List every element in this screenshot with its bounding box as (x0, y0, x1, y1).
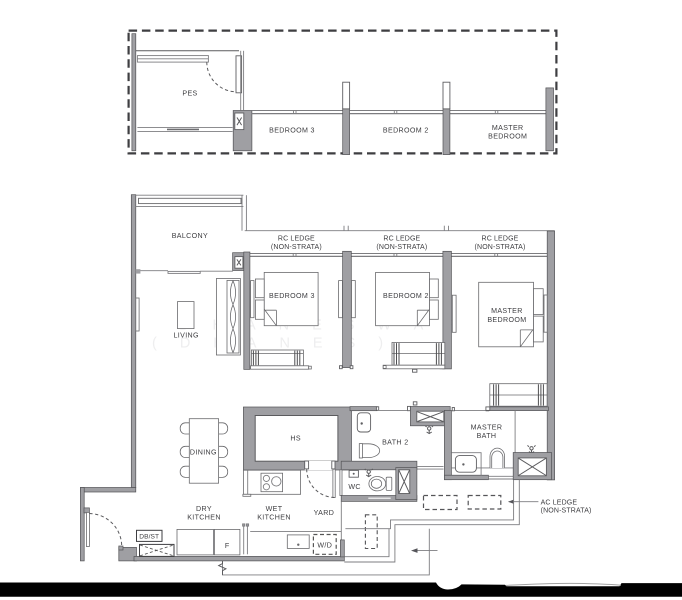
svg-text:BEDROOM 2: BEDROOM 2 (383, 126, 429, 134)
svg-text:RC LEDGE: RC LEDGE (482, 236, 519, 243)
svg-text:(NON-STRATA): (NON-STRATA) (475, 244, 526, 251)
svg-text:(NON-STRATA): (NON-STRATA) (271, 244, 322, 251)
svg-text:(NON-STRATA): (NON-STRATA) (376, 244, 427, 251)
svg-text:KITCHEN: KITCHEN (187, 514, 221, 522)
svg-text:AC LEDGE: AC LEDGE (541, 499, 578, 506)
svg-text:YARD: YARD (314, 509, 335, 517)
svg-text:PES: PES (182, 89, 197, 97)
svg-text:BEDROOM 2: BEDROOM 2 (383, 292, 429, 300)
svg-text:F: F (225, 542, 230, 550)
svg-text:WET: WET (266, 505, 283, 513)
svg-text:BATH 2: BATH 2 (382, 438, 408, 446)
svg-text:DB/ST: DB/ST (139, 534, 159, 541)
svg-text:BEDROOM: BEDROOM (488, 132, 527, 140)
svg-text:W/D: W/D (317, 541, 332, 549)
svg-text:(NON-STRATA): (NON-STRATA) (541, 508, 592, 515)
svg-text:WC: WC (348, 483, 361, 491)
svg-text:BEDROOM 3: BEDROOM 3 (269, 292, 315, 300)
svg-text:MASTER: MASTER (471, 423, 503, 431)
svg-text:BATH: BATH (477, 432, 497, 440)
svg-text:LIVING: LIVING (174, 332, 199, 340)
svg-text:MASTER: MASTER (492, 124, 524, 132)
svg-text:RC LEDGE: RC LEDGE (383, 236, 420, 243)
svg-text:BEDROOM 3: BEDROOM 3 (269, 126, 315, 134)
svg-text:BEDROOM: BEDROOM (487, 316, 526, 324)
svg-text:DRY: DRY (196, 505, 212, 513)
svg-text:MASTER: MASTER (491, 307, 523, 315)
svg-text:HS: HS (290, 434, 301, 442)
svg-text:RC LEDGE: RC LEDGE (278, 236, 315, 243)
svg-text:KITCHEN: KITCHEN (257, 514, 291, 522)
svg-text:DINING: DINING (190, 449, 217, 457)
svg-text:BALCONY: BALCONY (172, 232, 208, 240)
